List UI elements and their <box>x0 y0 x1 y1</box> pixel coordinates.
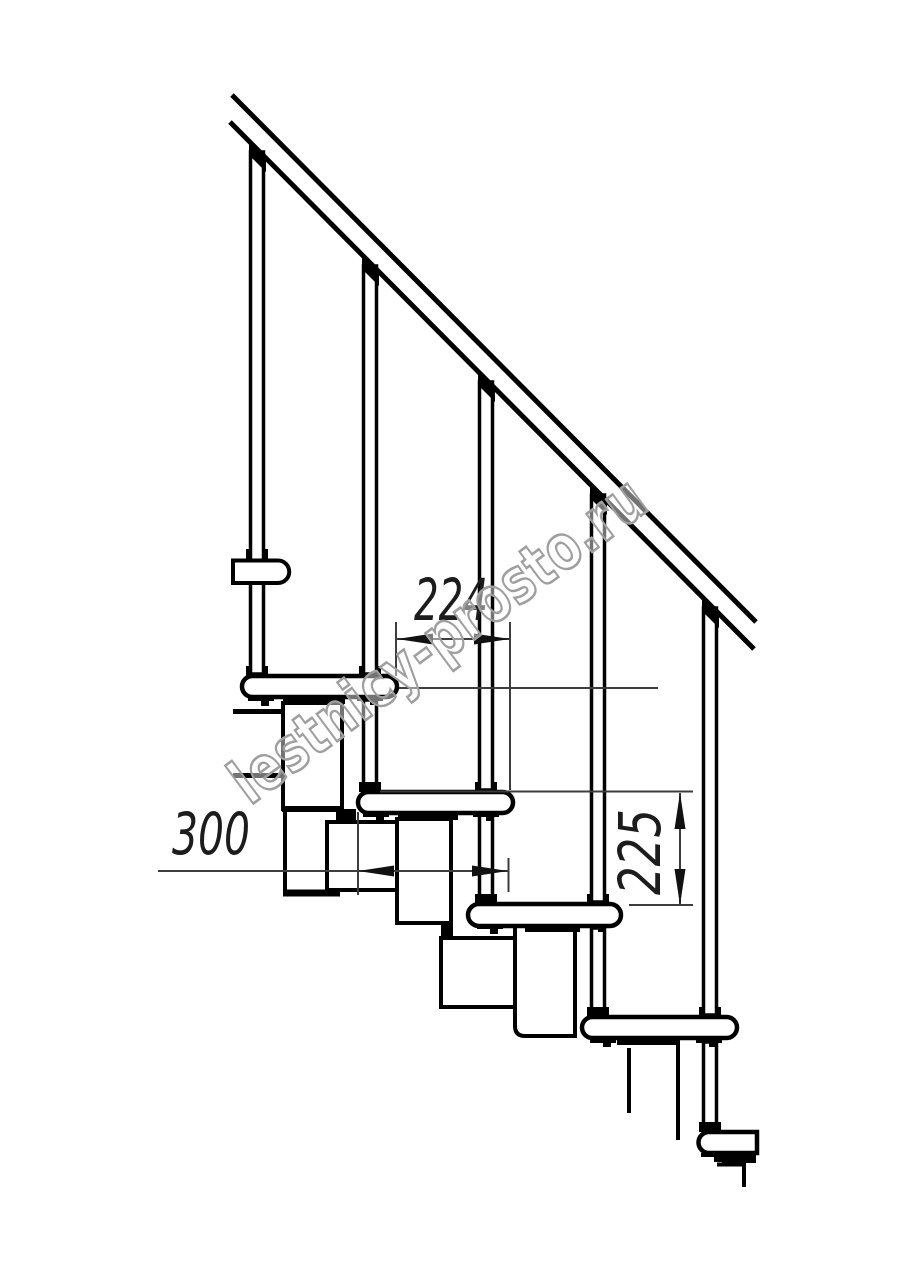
dim225-arrow-down <box>675 869 686 905</box>
collar-b2-tread2 <box>359 782 381 792</box>
post-segment-3 <box>480 815 493 904</box>
tread-2-right-foot <box>473 813 499 821</box>
tread-3-shadow <box>525 924 580 932</box>
collar-b5-tread5 <box>699 1122 721 1132</box>
tread-5-partial <box>699 1132 758 1153</box>
module-neck-2 <box>441 922 453 939</box>
tread-3 <box>468 904 621 926</box>
module-box-4 <box>441 938 518 1007</box>
collar-b3-tread3 <box>475 894 497 904</box>
post-segment-5 <box>704 1042 717 1132</box>
tread-4 <box>582 1017 737 1038</box>
tread-3-left-foot <box>477 925 503 934</box>
collar-b4-tread4 <box>587 1007 609 1017</box>
module-neck-1 <box>340 809 356 823</box>
dim-label-300: 300 <box>172 800 250 868</box>
dim225-arrow-up <box>675 793 686 829</box>
tread-4-left-foot <box>590 1039 616 1047</box>
tread-2 <box>358 792 513 813</box>
module-box-5 <box>515 925 575 1036</box>
dim-label-225: 225 <box>606 809 674 895</box>
baluster-1 <box>251 152 264 674</box>
handrail-bracket <box>233 561 289 584</box>
post-segment-4 <box>592 928 605 1017</box>
tread-2-shadow <box>398 813 458 820</box>
tread-3-right-foot <box>585 924 611 932</box>
module-box-2 <box>327 822 403 890</box>
module-cut-line-3 <box>717 1165 744 1188</box>
tread-5-shadow <box>722 1154 756 1163</box>
tread-4-shadow <box>617 1038 680 1045</box>
staircase-drawing: 224 300 225 lestnicy-prosto.ru <box>0 0 914 1280</box>
baluster-5 <box>704 608 717 1015</box>
tread-1-left-foot <box>248 697 274 706</box>
baluster-2 <box>364 266 377 674</box>
drawing-canvas: 224 300 225 lestnicy-prosto.ru <box>0 0 914 1280</box>
